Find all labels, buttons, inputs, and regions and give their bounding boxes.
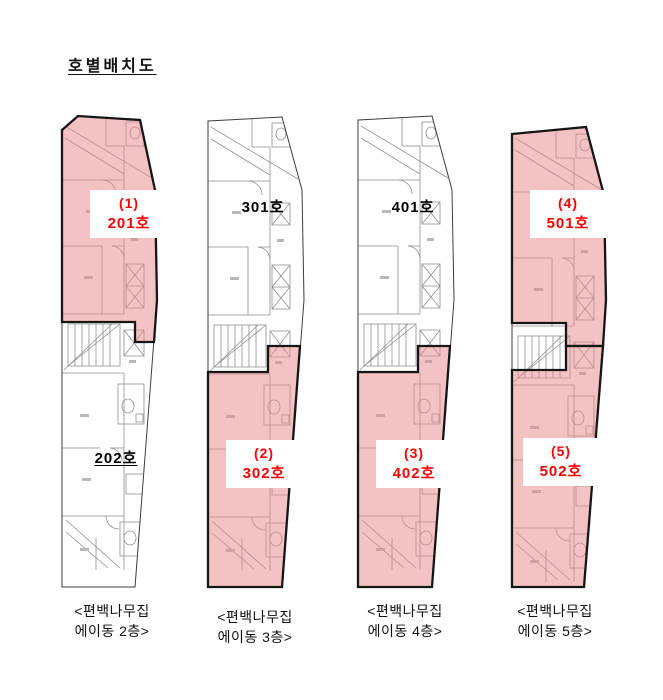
unit-layout-document: 호별배치도: [0, 0, 663, 700]
unit-label-401: 401호: [378, 196, 448, 217]
plan-caption-5f: <편백나무집 에이동 5층>: [498, 601, 612, 641]
unit-label-302: (2) 302호: [226, 440, 302, 488]
caption-line1: <편백나무집: [498, 601, 612, 621]
plan-caption-3f: <편백나무집 에이동 3층>: [198, 607, 312, 647]
plan-caption-2f: <편백나무집 에이동 2층>: [55, 601, 169, 641]
unit-index: (5): [525, 441, 597, 461]
floor-plan-4f: [355, 116, 454, 587]
caption-line1: <편백나무집: [55, 601, 169, 621]
unit-label-201: (1) 201호: [90, 190, 168, 238]
floor-plan-3f: [205, 117, 304, 587]
unit-index: (3): [378, 443, 450, 463]
unit-label-402: (3) 402호: [376, 440, 452, 488]
caption-line1: <편백나무집: [198, 607, 312, 627]
unit-index: (2): [228, 443, 300, 463]
unit-number: 402호: [378, 463, 450, 485]
unit-label-202: 202호: [84, 447, 148, 468]
unit-label-501: (4) 501호: [530, 190, 606, 238]
plan-caption-4f: <편백나무집 에이동 4층>: [348, 601, 462, 641]
unit-number: 201호: [92, 213, 166, 235]
unit-number: 501호: [532, 213, 604, 235]
floor-plans-drawing: [0, 0, 663, 700]
unit-number: 502호: [525, 461, 597, 483]
unit-label-301: 301호: [228, 196, 298, 217]
floor-plan-2f: [59, 116, 157, 587]
caption-line2: 에이동 4층>: [348, 621, 462, 641]
caption-line2: 에이동 3층>: [198, 627, 312, 647]
caption-line2: 에이동 5층>: [498, 621, 612, 641]
caption-line1: <편백나무집: [348, 601, 462, 621]
unit-index: (1): [92, 193, 166, 213]
unit-label-502: (5) 502호: [523, 438, 599, 486]
caption-line2: 에이동 2층>: [55, 621, 169, 641]
unit-number: 302호: [228, 463, 300, 485]
unit-index: (4): [532, 193, 604, 213]
